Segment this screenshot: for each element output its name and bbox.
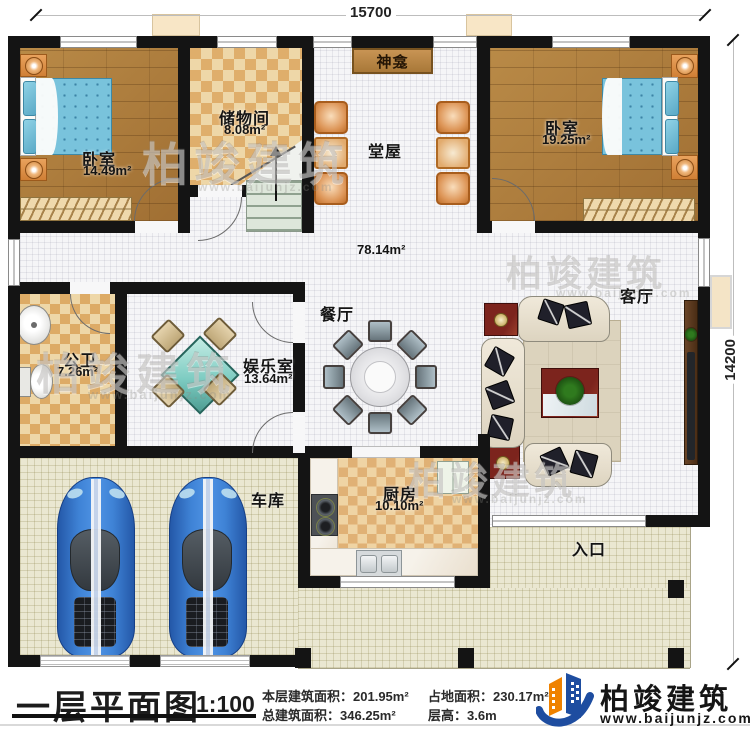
car (169, 477, 247, 658)
dimension-top: 15700 (346, 4, 396, 21)
brand-logo-icon (536, 668, 594, 730)
stat-land-area-label: 占地面积： (428, 689, 493, 704)
bay-cabinet (710, 275, 732, 329)
brand-url: www.baijunjz.com (600, 710, 750, 726)
lamp-icon (676, 159, 694, 177)
window (433, 36, 477, 48)
nightstand (20, 158, 47, 181)
shrine-table: 神龛 (352, 48, 433, 74)
burner-icon (316, 498, 335, 517)
door-opening (293, 302, 305, 343)
nightstand (671, 54, 698, 78)
watermark-url: www.baijunjz.com (198, 180, 334, 194)
dining-chair (368, 412, 392, 434)
room-label-entrance: 入口 (572, 536, 606, 560)
room-label-shrine: 神龛 (376, 51, 408, 72)
sink-bowl (360, 555, 377, 573)
wall-living-bottom (646, 515, 710, 527)
hall-tea-table (436, 137, 470, 169)
dining-chair (415, 365, 437, 389)
window (340, 576, 455, 588)
title-underline (12, 714, 256, 718)
hall-chair (436, 101, 470, 134)
decor-knob (494, 313, 508, 327)
garage-door (160, 655, 250, 667)
room-label-garage: 车库 (251, 487, 285, 511)
lamp-icon (676, 57, 694, 75)
wardrobe (583, 198, 695, 222)
dimension-right: 14200 (722, 336, 739, 384)
wall-garage-kitchen (298, 446, 310, 588)
car (57, 477, 135, 658)
stat-floor-height-value: 3.6m (467, 708, 497, 723)
window (60, 36, 137, 48)
porch-post (295, 648, 311, 668)
stat-land-area: 占地面积：230.17m² (428, 686, 549, 705)
room-area-gameroom: 13.64m² (244, 371, 292, 386)
hall-chair (436, 172, 470, 205)
pillow (665, 81, 679, 116)
door-opening (293, 412, 305, 453)
porch-strip-floor (298, 588, 690, 669)
garage-door (40, 655, 130, 667)
dining-table-center (364, 361, 396, 393)
plan-title: 一层平面图 (16, 680, 201, 729)
door-opening (135, 221, 178, 233)
window (552, 36, 630, 48)
room-label-dining: 餐厅 (320, 301, 354, 325)
wardrobe (20, 197, 132, 221)
wall-bedroom2-left (477, 36, 490, 233)
porch-post (458, 648, 474, 668)
stove (311, 494, 338, 536)
end-table (484, 303, 518, 336)
window (217, 36, 277, 48)
stat-total-area-value: 346.25m² (340, 708, 396, 723)
door-opening (492, 221, 535, 233)
stat-floor-area-value: 201.95m² (353, 689, 409, 704)
porch-post (668, 648, 684, 668)
room-area-hall: 78.14m² (357, 242, 405, 257)
sofa-pillow (564, 301, 592, 329)
wall-left (8, 36, 20, 667)
watermark-url: www.baijunjz.com (452, 492, 588, 506)
lamp-icon (25, 57, 43, 75)
sofa-top (518, 296, 610, 342)
entrance-threshold (492, 515, 646, 527)
porch-stoop (152, 14, 200, 36)
stat-floor-height: 层高：3.6m (428, 705, 497, 724)
faucet-icon (31, 322, 37, 328)
stat-total-area-label: 总建筑面积： (262, 708, 340, 723)
stat-floor-area: 本层建筑面积：201.95m² (262, 686, 409, 705)
bed-sheet-fold (602, 78, 622, 155)
pillow (23, 119, 37, 154)
porch-post (668, 580, 684, 598)
tv-icon (687, 352, 695, 460)
nightstand (671, 155, 698, 180)
porch-stoop (466, 14, 512, 36)
sofa-pillow (487, 414, 514, 441)
stat-floor-area-label: 本层建筑面积： (262, 689, 353, 704)
door-opening (70, 282, 110, 294)
room-area-bedroom1: 14.49m² (83, 163, 131, 178)
dining-chair (323, 365, 345, 389)
room-label-hall: 堂屋 (368, 138, 402, 162)
pillow (665, 119, 679, 154)
room-area-bedroom2: 19.25m² (542, 132, 590, 147)
nightstand (20, 54, 47, 77)
window (698, 238, 710, 287)
stat-total-area: 总建筑面积：346.25m² (262, 705, 396, 724)
racing-stripe (90, 479, 102, 656)
sink-bowl (381, 555, 398, 573)
burner-icon (316, 517, 335, 536)
racing-stripe (202, 479, 214, 656)
window (8, 239, 20, 286)
wall-bath-game-top (8, 282, 305, 294)
lamp-icon (25, 161, 43, 179)
stat-floor-height-label: 层高： (428, 708, 467, 723)
window (313, 36, 352, 48)
watermark-url: www.baijunjz.com (556, 286, 692, 300)
pillow (23, 81, 37, 116)
watermark-url: www.baijunjz.com (88, 387, 232, 402)
plant-icon (556, 377, 584, 405)
plant-icon (685, 328, 697, 341)
floor-plan: 神龛 (0, 0, 750, 734)
dining-chair (368, 320, 392, 342)
kitchen-sink (356, 550, 402, 577)
bed-sheet-fold (36, 78, 58, 155)
